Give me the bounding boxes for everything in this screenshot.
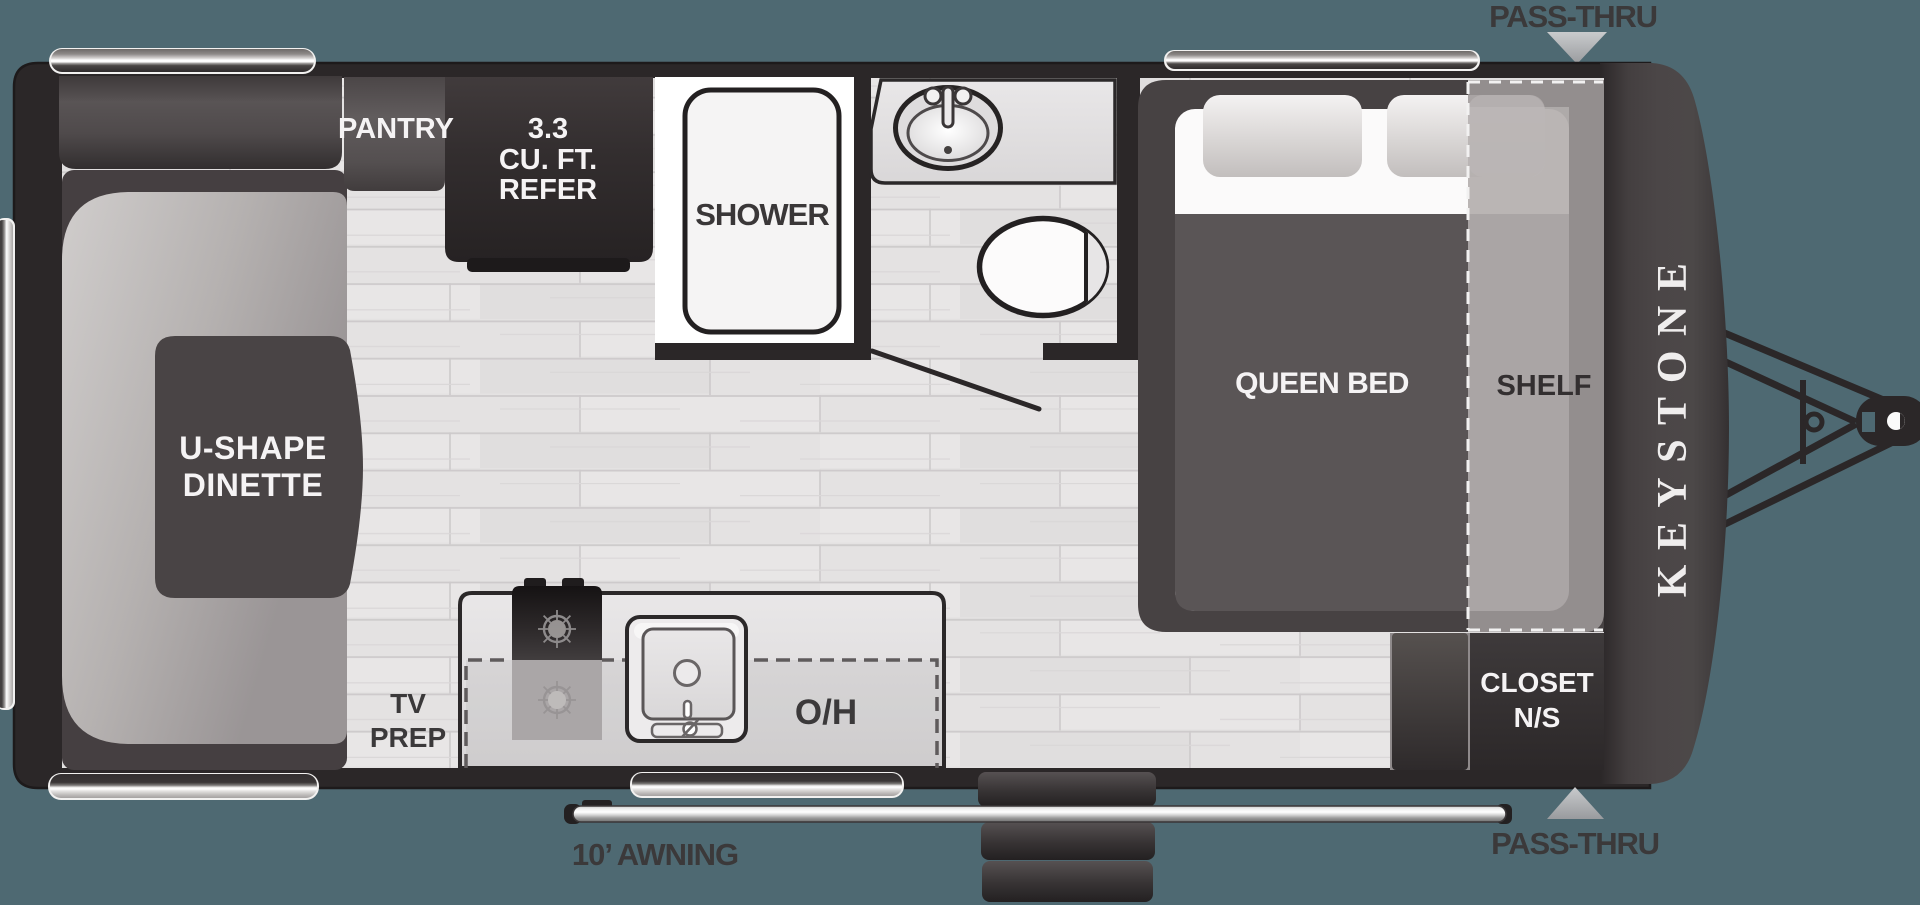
svg-text:SHOWER: SHOWER [695,197,829,232]
svg-text:PREP: PREP [370,722,446,753]
svg-text:DINETTE: DINETTE [183,467,323,503]
svg-text:PASS-THRU: PASS-THRU [1489,0,1657,34]
svg-text:3.3: 3.3 [528,113,568,145]
svg-text:PASS-THRU: PASS-THRU [1491,826,1659,861]
svg-text:CU. FT.: CU. FT. [499,144,597,176]
svg-text:TV: TV [390,688,426,719]
svg-text:REFER: REFER [499,174,597,206]
svg-text:CLOSET: CLOSET [1480,667,1594,698]
svg-text:QUEEN BED: QUEEN BED [1235,367,1409,400]
svg-text:SHELF: SHELF [1496,370,1591,402]
svg-text:N/S: N/S [1514,702,1561,733]
svg-text:O/H: O/H [795,693,857,732]
svg-text:KEYSTONE: KEYSTONE [1650,249,1696,598]
svg-text:10’ AWNING: 10’ AWNING [572,837,738,872]
svg-text:U-SHAPE: U-SHAPE [179,430,327,466]
svg-text:PANTRY: PANTRY [338,113,454,145]
